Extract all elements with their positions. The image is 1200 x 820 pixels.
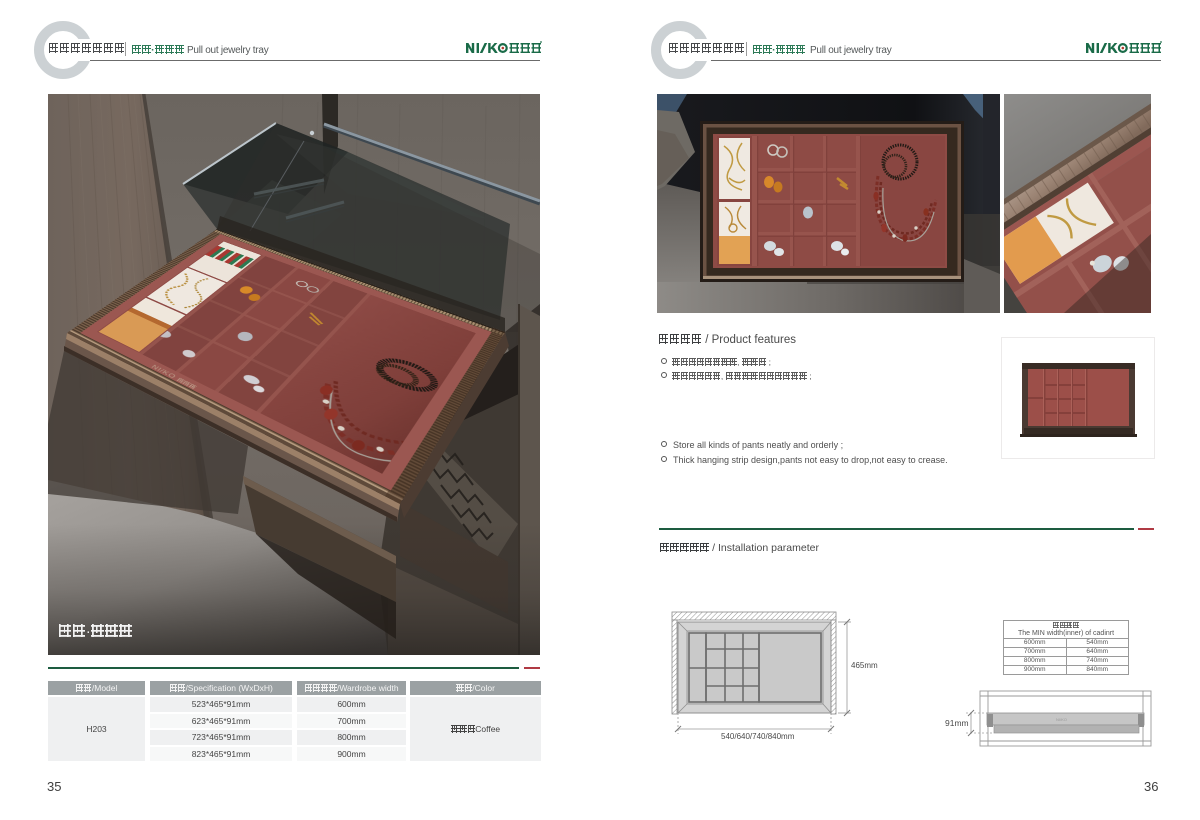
svg-text:540/640/740/840mm: 540/640/740/840mm — [721, 732, 795, 741]
svg-text:91mm: 91mm — [945, 718, 969, 728]
svg-text:NI/KO: NI/KO — [1056, 717, 1067, 722]
svg-text:465mm: 465mm — [851, 661, 878, 670]
